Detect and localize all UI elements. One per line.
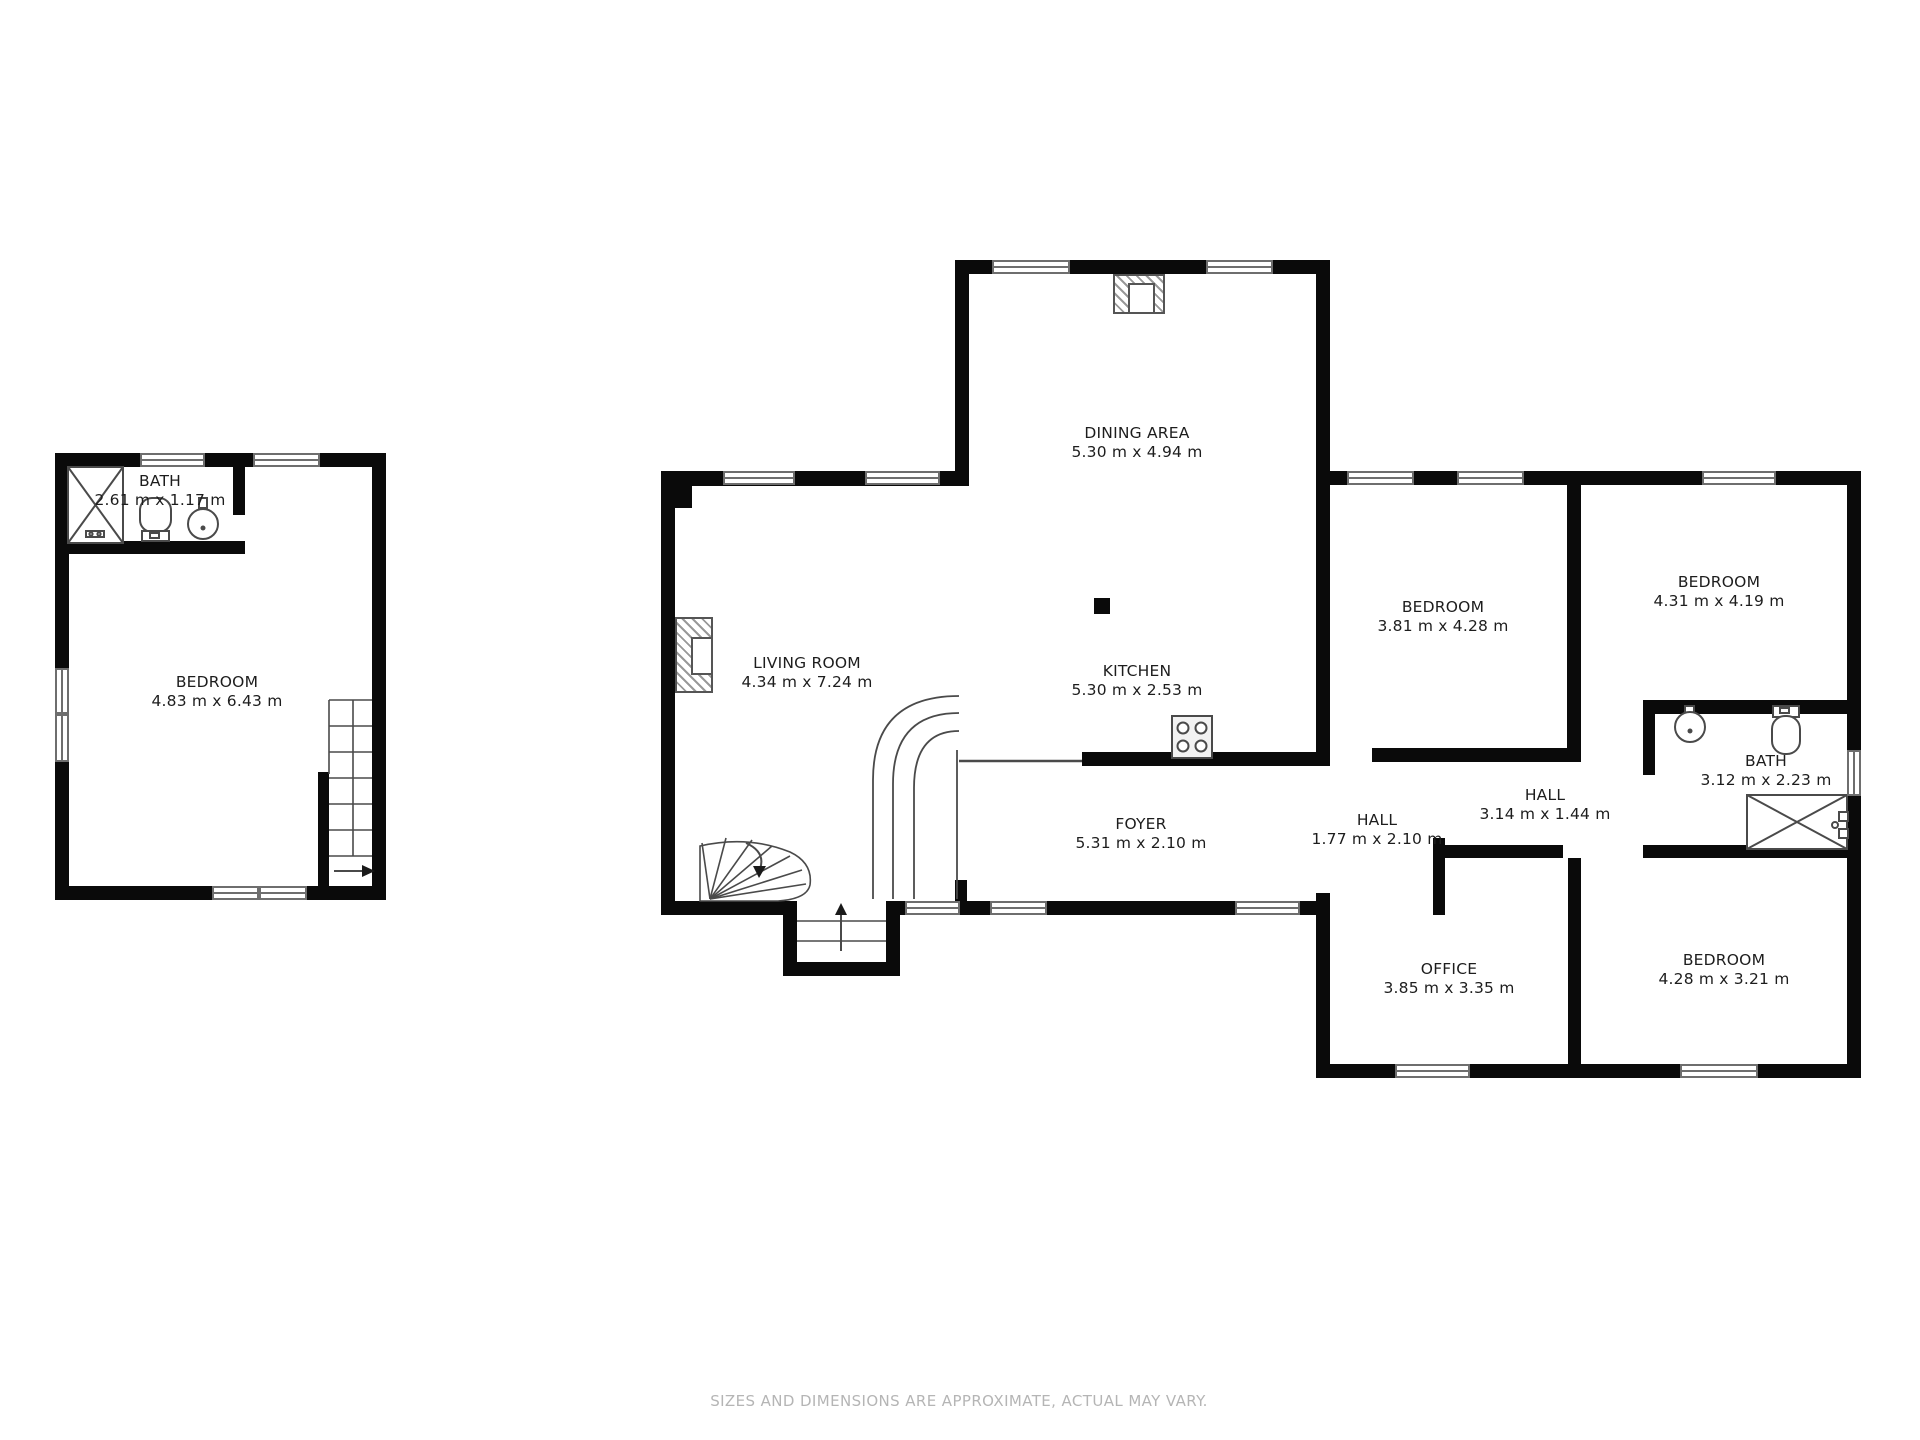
window [55,714,69,762]
window [1206,260,1273,274]
stair-rails [873,696,1082,899]
fixtures-layer [0,0,1920,1440]
window [55,668,69,714]
window [1347,471,1414,485]
stairs-icon [329,700,372,856]
room-dimensions: 4.28 m x 3.21 m [1658,970,1789,989]
window [140,453,205,467]
room-label-hall-small: HALL1.77 m x 2.10 m [1311,811,1442,848]
room-dimensions: 5.30 m x 2.53 m [1071,681,1202,700]
room-label-bedroom-west: BEDROOM3.81 m x 4.28 m [1377,598,1508,635]
room-label-bedroom-southeast: BEDROOM4.28 m x 3.21 m [1658,951,1789,988]
toilet-icon [1772,706,1800,754]
room-name: BEDROOM [151,673,282,692]
room-name: DINING AREA [1071,424,1202,443]
sink-icon [1675,706,1705,742]
room-dimensions: 1.77 m x 2.10 m [1311,830,1442,849]
room-label-foyer: FOYER5.31 m x 2.10 m [1075,815,1206,852]
room-dimensions: 4.83 m x 6.43 m [151,692,282,711]
room-name: OFFICE [1383,960,1514,979]
window [865,471,940,485]
room-name: BATH [94,472,225,491]
room-dimensions: 4.34 m x 7.24 m [741,673,872,692]
window [1680,1064,1758,1078]
bathtub-icon [1747,795,1848,849]
window [723,471,795,485]
stove-icon [1172,716,1212,758]
window [905,901,960,915]
window [992,260,1070,274]
window [1395,1064,1470,1078]
winder-stairs-icon [700,838,810,901]
room-dimensions: 5.30 m x 4.94 m [1071,443,1202,462]
window [253,453,320,467]
window [1847,750,1861,796]
room-name: FOYER [1075,815,1206,834]
room-name: BATH [1700,752,1831,771]
room-label-bedroom-upper-unit: BEDROOM4.83 m x 6.43 m [151,673,282,710]
window [1457,471,1524,485]
room-name: KITCHEN [1071,662,1202,681]
window [1235,901,1300,915]
floor-plan: SIZES AND DIMENSIONS ARE APPROXIMATE, AC… [0,0,1920,1440]
window [990,901,1047,915]
disclaimer-text: SIZES AND DIMENSIONS ARE APPROXIMATE, AC… [710,1392,1208,1410]
window [1702,471,1776,485]
entry-steps-icon [797,903,886,951]
room-label-living-room: LIVING ROOM4.34 m x 7.24 m [741,654,872,691]
room-label-bath-east: BATH3.12 m x 2.23 m [1700,752,1831,789]
room-name: BEDROOM [1377,598,1508,617]
room-label-office: OFFICE3.85 m x 3.35 m [1383,960,1514,997]
room-dimensions: 3.85 m x 3.35 m [1383,979,1514,998]
window [259,886,307,900]
room-label-dining-area: DINING AREA5.30 m x 4.94 m [1071,424,1202,461]
room-name: HALL [1479,786,1610,805]
room-dimensions: 3.12 m x 2.23 m [1700,771,1831,790]
room-label-bedroom-northeast: BEDROOM4.31 m x 4.19 m [1653,573,1784,610]
room-dimensions: 2.61 m x 1.17 m [94,491,225,510]
room-label-bath-upper-unit: BATH2.61 m x 1.17 m [94,472,225,509]
window [212,886,259,900]
room-name: HALL [1311,811,1442,830]
room-dimensions: 4.31 m x 4.19 m [1653,592,1784,611]
direction-arrow-icon [334,865,375,877]
room-label-hall-long: HALL3.14 m x 1.44 m [1479,786,1610,823]
room-name: BEDROOM [1653,573,1784,592]
room-dimensions: 5.31 m x 2.10 m [1075,834,1206,853]
room-name: LIVING ROOM [741,654,872,673]
room-dimensions: 3.81 m x 4.28 m [1377,617,1508,636]
room-label-kitchen: KITCHEN5.30 m x 2.53 m [1071,662,1202,699]
room-name: BEDROOM [1658,951,1789,970]
room-dimensions: 3.14 m x 1.44 m [1479,805,1610,824]
